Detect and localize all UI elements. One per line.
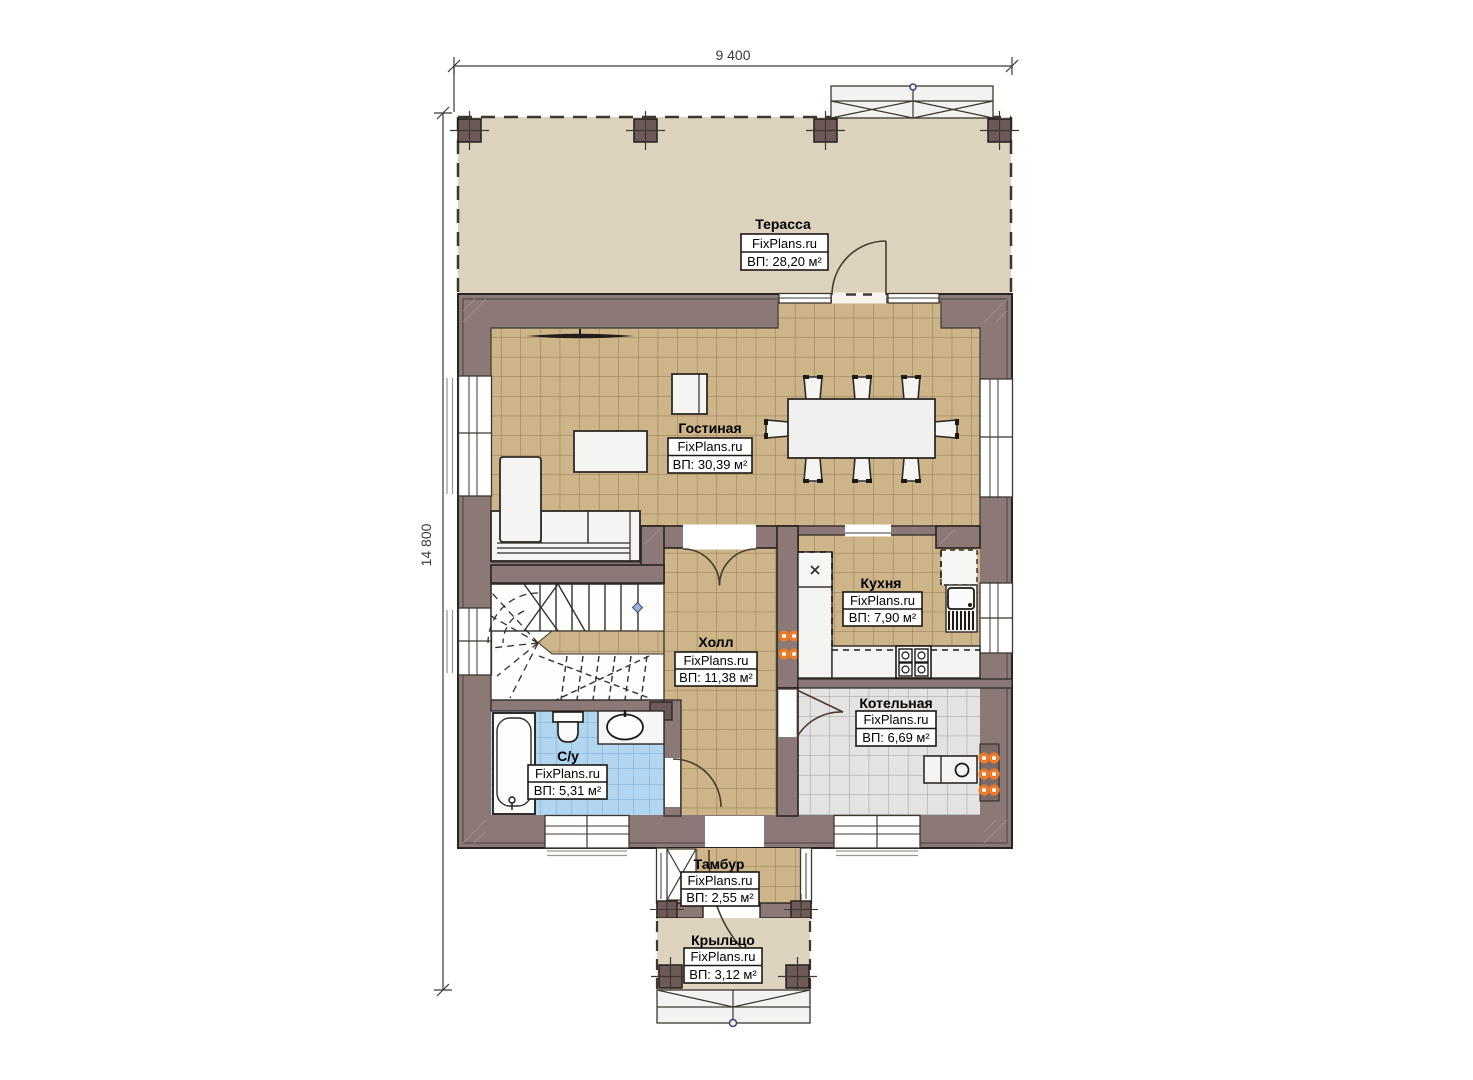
svg-text:Котельная: Котельная [859,695,932,711]
svg-text:FixPlans.ru: FixPlans.ru [677,439,742,454]
svg-text:Холл: Холл [698,634,733,650]
svg-text:14 800: 14 800 [418,523,434,566]
svg-text:ВП: 5,31 м²: ВП: 5,31 м² [534,783,602,798]
svg-text:Тамбур: Тамбур [694,856,745,872]
svg-text:9 400: 9 400 [715,47,750,63]
svg-text:Кухня: Кухня [861,575,902,591]
svg-text:FixPlans.ru: FixPlans.ru [863,712,928,727]
svg-text:FixPlans.ru: FixPlans.ru [683,653,748,668]
svg-text:FixPlans.ru: FixPlans.ru [690,949,755,964]
svg-text:ВП: 7,90 м²: ВП: 7,90 м² [849,610,917,625]
svg-text:ВП: 3,12 м²: ВП: 3,12 м² [689,967,757,982]
svg-text:С/у: С/у [557,748,579,764]
svg-text:FixPlans.ru: FixPlans.ru [850,593,915,608]
svg-text:FixPlans.ru: FixPlans.ru [752,236,817,251]
svg-text:Терасса: Терасса [755,216,811,232]
svg-text:FixPlans.ru: FixPlans.ru [535,766,600,781]
svg-text:ВП: 6,69 м²: ВП: 6,69 м² [862,730,930,745]
svg-text:ВП: 2,55 м²: ВП: 2,55 м² [686,890,754,905]
svg-text:ВП: 30,39 м²: ВП: 30,39 м² [673,457,748,472]
svg-text:FixPlans.ru: FixPlans.ru [687,873,752,888]
svg-text:ВП: 11,38 м²: ВП: 11,38 м² [679,670,753,685]
svg-text:Крыльцо: Крыльцо [691,932,755,948]
svg-text:ВП: 28,20 м²: ВП: 28,20 м² [747,254,822,269]
svg-text:Гостиная: Гостиная [678,420,741,436]
